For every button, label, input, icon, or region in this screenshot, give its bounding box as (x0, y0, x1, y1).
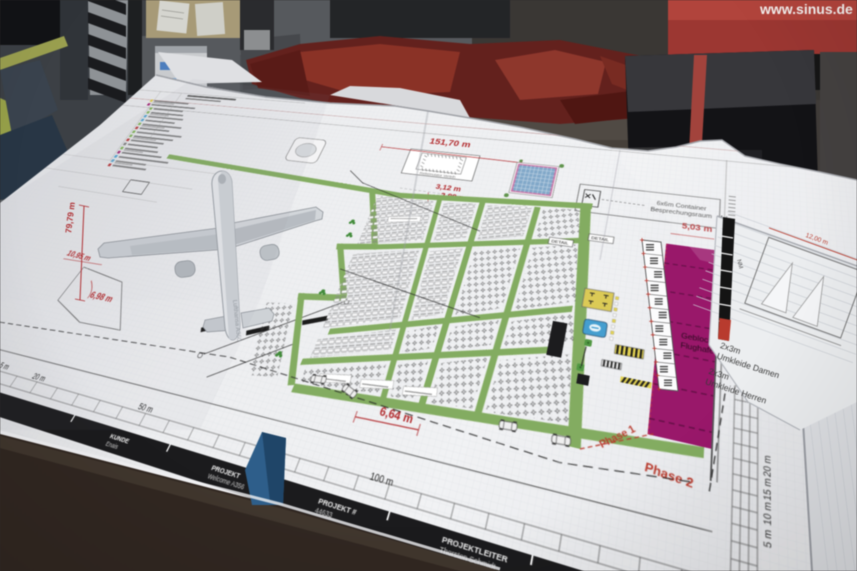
svg-text:15 m: 15 m (760, 477, 773, 502)
svg-text:5 m: 5 m (760, 528, 774, 550)
svg-text:10 m: 10 m (760, 500, 774, 527)
svg-text:20 m: 20 m (760, 454, 773, 478)
